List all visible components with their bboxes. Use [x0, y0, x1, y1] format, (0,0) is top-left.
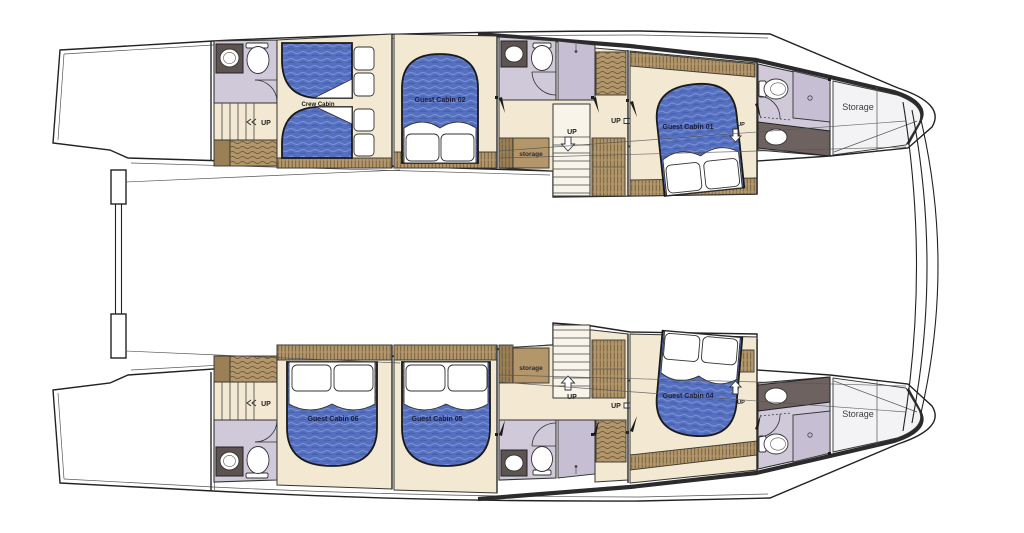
gc06-sink-icon — [220, 452, 239, 470]
crew-wardrobe — [214, 140, 277, 166]
guest-cabin-02-pillow — [406, 134, 439, 161]
crew-bathroom-toilet-icon — [247, 47, 269, 74]
crew-cabin: Crew Cabin — [277, 34, 392, 168]
guest-cabin-02: Guest Cabin 02 — [394, 34, 497, 168]
guest-cabin-02-bathroom — [499, 37, 595, 100]
guest-cabin-05: Guest Cabin 05 — [394, 345, 497, 493]
crew-bathroom-sink-icon — [220, 49, 239, 67]
gc04-toilet-icon — [764, 434, 788, 454]
storage-aft-label-port: Storage — [842, 102, 874, 112]
up-label: UP — [611, 118, 621, 125]
guest-cabin-01-label: Guest Cabin 01 — [663, 124, 714, 131]
crew-bed-upper-pillow — [354, 47, 374, 70]
up-label: UP — [737, 400, 745, 406]
crew-bed-lower-pillow — [354, 109, 374, 131]
gc02-shower — [558, 41, 595, 100]
guest-cabin-06-bathroom — [214, 420, 277, 482]
gc02-shower-head-icon — [575, 50, 578, 53]
port-companionway-stairs — [553, 104, 590, 196]
storage-aft-label-starboard: Storage — [842, 409, 874, 419]
deck-plan-svg: UP Crew Cabin — [0, 0, 1024, 533]
guest-cabin-01: Guest Cabin 01 UP — [626, 51, 757, 196]
up-label: UP — [261, 120, 271, 127]
gc05-shower — [558, 420, 595, 478]
starboard-forward-stairs: UP — [214, 382, 277, 420]
floor-plan: UP Crew Cabin — [0, 0, 1024, 533]
forward-beam-post-upper — [111, 170, 126, 204]
guest-cabin-01-bathroom — [755, 64, 831, 156]
gc05-shower-head-icon — [575, 465, 578, 468]
guest-cabin-04-label: Guest Cabin 04 — [663, 393, 714, 400]
up-label: UP — [567, 129, 577, 136]
up-label: UP — [611, 403, 621, 410]
crew-cabin-label: Crew Cabin — [301, 102, 334, 108]
crew-bathroom — [214, 40, 277, 103]
gc06-toilet-icon — [247, 447, 269, 474]
guest-cabin-02-label: Guest Cabin 02 — [415, 97, 466, 104]
crew-stairs: UP — [214, 103, 277, 140]
guest-cabin-04-bathroom — [755, 377, 831, 469]
up-label: UP — [567, 394, 577, 401]
up-label: UP — [737, 122, 745, 128]
gc05-sink-icon — [505, 455, 523, 471]
guest-cabin-05-bathroom — [499, 420, 595, 480]
up-label: UP — [261, 401, 271, 408]
gc02-sink-icon — [505, 46, 523, 62]
gc01-toilet-icon — [764, 79, 788, 99]
hull-port: UP Crew Cabin — [53, 31, 935, 197]
gc02-toilet-icon — [532, 46, 553, 71]
guest-cabin-06-label: Guest Cabin 06 — [308, 416, 359, 423]
gc05-toilet-icon — [532, 447, 553, 472]
starboard-forward-wardrobe — [214, 356, 277, 382]
forward-crossbeam — [111, 170, 400, 363]
guest-cabin-04-pillow — [663, 333, 700, 362]
guest-cabin-01-pillow — [666, 162, 703, 193]
guest-cabin-05-pillow — [406, 365, 445, 391]
guest-cabin-06-pillow — [292, 365, 331, 391]
hull-starboard: UP Guest Cabin 06 — [53, 323, 935, 501]
storage-label-starboard: storage — [519, 365, 543, 372]
guest-cabin-04: Guest Cabin 04 UP — [626, 331, 757, 483]
guest-cabin-05-label: Guest Cabin 05 — [412, 416, 463, 423]
forward-beam-post-lower — [111, 314, 126, 358]
aft-crossbeam-curves — [903, 102, 938, 431]
guest-cabin-06: Guest Cabin 06 — [277, 345, 392, 489]
